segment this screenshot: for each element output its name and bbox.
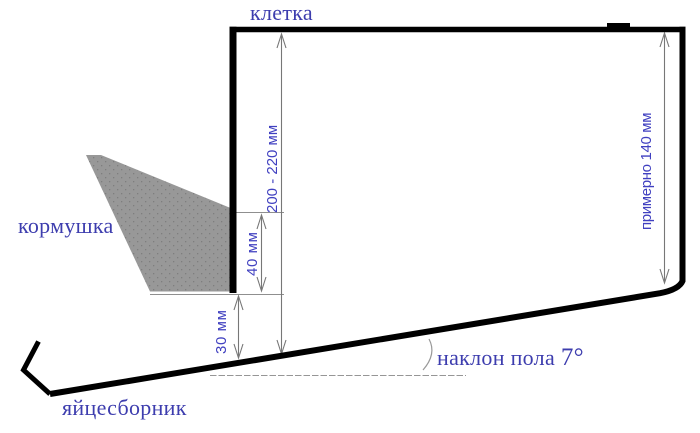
svg-text:примерно 140 мм: примерно 140 мм bbox=[638, 113, 655, 230]
svg-text:30 мм: 30 мм bbox=[213, 310, 230, 354]
svg-text:клетка: клетка bbox=[250, 0, 313, 25]
svg-text:40 мм: 40 мм bbox=[244, 232, 261, 276]
svg-text:200 - 220 мм: 200 - 220 мм bbox=[264, 125, 281, 213]
svg-text:кормушка: кормушка bbox=[18, 213, 114, 238]
svg-text:наклон пола 7°: наклон пола 7° bbox=[437, 344, 584, 371]
svg-text:яйцесборник: яйцесборник bbox=[62, 395, 187, 420]
